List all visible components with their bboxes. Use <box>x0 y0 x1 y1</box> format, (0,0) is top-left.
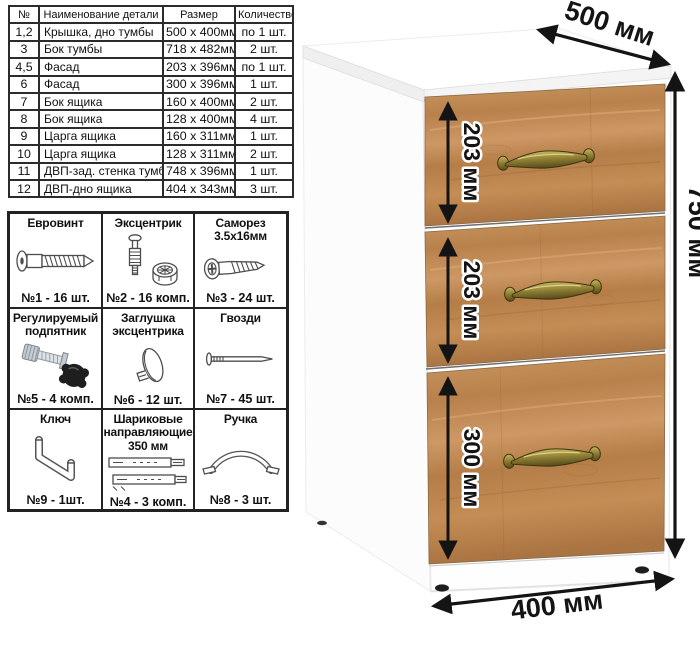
hardware-item-samorez: Саморез 3.5х16мм №3 - 24 шт. <box>194 213 287 308</box>
part-number: 3 <box>9 41 39 58</box>
dimension-label-width: 400 мм <box>509 585 604 626</box>
cabinet-illustration: 500 мм 750 мм 400 мм 203 мм 203 мм 300 м… <box>290 0 700 648</box>
part-size: 404 x 343мм <box>163 180 235 197</box>
nail-icon <box>196 325 285 392</box>
part-size: 718 x 482мм <box>163 41 235 58</box>
part-size: 128 x 400мм <box>163 110 235 127</box>
col-header-name: Наименование детали <box>39 6 163 23</box>
euro-screw-icon <box>11 230 100 291</box>
hardware-count: №6 - 12 шт. <box>114 393 183 407</box>
self-tapping-screw-icon <box>196 244 285 291</box>
assembly-sheet: № Наименование детали Размер Количество … <box>0 0 700 648</box>
part-name: ДВП-зад. стенка тумбы <box>39 163 163 180</box>
part-qty: 1 шт. <box>235 76 293 93</box>
cabinet-foot <box>635 566 649 573</box>
part-qty: 3 шт. <box>235 180 293 197</box>
table-row: 8 Бок ящика 128 x 400мм 4 шт. <box>9 110 293 127</box>
hardware-item-zaglushka: Заглушка эксцентрика №6 - 12 шт. <box>102 308 194 409</box>
hardware-item-podpyatnik: Регулируемый подпятник <box>9 308 102 409</box>
part-qty: 2 шт. <box>235 41 293 58</box>
part-number: 12 <box>9 180 39 197</box>
part-qty: 1 шт. <box>235 163 293 180</box>
hardware-title: Заглушка эксцентрика <box>104 312 192 339</box>
hardware-count: №3 - 24 шт. <box>206 291 275 305</box>
dimension-label-drawer3: 300 мм <box>459 429 485 508</box>
part-number: 9 <box>9 128 39 145</box>
hardware-count: №9 - 1шт. <box>26 493 84 507</box>
part-name: Царга ящика <box>39 128 163 145</box>
part-name: Царга ящика <box>39 145 163 162</box>
part-number: 4,5 <box>9 58 39 75</box>
ball-bearing-slides-icon <box>104 453 192 495</box>
hardware-title: Ручка <box>224 413 257 426</box>
parts-table: № Наименование детали Размер Количество … <box>8 5 294 198</box>
table-row: 7 Бок ящика 160 x 400мм 2 шт. <box>9 93 293 110</box>
hardware-title: Шариковые направляющие 350 мм <box>103 413 192 453</box>
hardware-count: №8 - 3 шт. <box>210 493 272 507</box>
part-number: 6 <box>9 76 39 93</box>
hardware-count: №4 - 3 комп. <box>110 495 187 509</box>
part-name: ДВП-дно ящика <box>39 180 163 197</box>
part-size: 500 x 400мм <box>163 23 235 40</box>
cam-lock-icon <box>104 230 192 291</box>
handle-icon <box>196 426 285 493</box>
adjustable-foot-icon <box>11 339 100 392</box>
part-qty: 2 шт. <box>235 145 293 162</box>
part-qty: 4 шт. <box>235 110 293 127</box>
col-header-size: Размер <box>163 6 235 23</box>
part-size: 748 x 396мм <box>163 163 235 180</box>
part-name: Крышка, дно тумбы <box>39 23 163 40</box>
part-size: 160 x 400мм <box>163 93 235 110</box>
part-qty: 2 шт. <box>235 93 293 110</box>
col-header-num: № <box>9 6 39 23</box>
hardware-title: Ключ <box>40 413 71 426</box>
part-name: Бок ящика <box>39 93 163 110</box>
part-size: 128 x 311мм <box>163 145 235 162</box>
table-row: 3 Бок тумбы 718 x 482мм 2 шт. <box>9 41 293 58</box>
hardware-title: Гвозди <box>220 312 261 325</box>
part-size: 203 x 396мм <box>163 58 235 75</box>
dimension-label-drawer2: 203 мм <box>459 261 485 340</box>
hardware-item-excentric: Эксцентрик №2 - 16 комп. <box>102 213 194 308</box>
part-name: Фасад <box>39 76 163 93</box>
hardware-title: Эксцентрик <box>115 217 182 230</box>
hardware-item-ruchka: Ручка №8 - 3 шт. <box>194 409 287 510</box>
hardware-item-gvozdi: Гвозди №7 - 45 шт. <box>194 308 287 409</box>
hardware-count: №7 - 45 шт. <box>206 392 275 406</box>
table-row: 4,5 Фасад 203 x 396мм по 1 шт. <box>9 58 293 75</box>
part-size: 300 x 396мм <box>163 76 235 93</box>
table-row: 11 ДВП-зад. стенка тумбы 748 x 396мм 1 ш… <box>9 163 293 180</box>
cabinet-foot-rear <box>317 521 327 525</box>
part-number: 11 <box>9 163 39 180</box>
part-qty: 1 шт. <box>235 128 293 145</box>
table-row: 1,2 Крышка, дно тумбы 500 x 400мм по 1 ш… <box>9 23 293 40</box>
cam-cover-icon <box>104 339 192 393</box>
hardware-title: Регулируемый подпятник <box>11 312 100 339</box>
table-row: 9 Царга ящика 160 x 311мм 1 шт. <box>9 128 293 145</box>
part-number: 8 <box>9 110 39 127</box>
hardware-item-napravlyayushchie: Шариковые направляющие 350 мм №4 - 3 ком… <box>102 409 194 510</box>
part-number: 7 <box>9 93 39 110</box>
table-row: 10 Царга ящика 128 x 311мм 2 шт. <box>9 145 293 162</box>
part-number: 10 <box>9 145 39 162</box>
dimension-label-drawer1: 203 мм <box>459 123 485 202</box>
hardware-count: №5 - 4 комп. <box>17 392 94 406</box>
hex-key-icon <box>11 426 100 493</box>
part-name: Бок тумбы <box>39 41 163 58</box>
cabinet-left-side <box>303 57 430 591</box>
hardware-count: №1 - 16 шт. <box>21 291 90 305</box>
cabinet-foot <box>435 584 449 591</box>
part-qty: по 1 шт. <box>235 23 293 40</box>
table-row: 6 Фасад 300 x 396мм 1 шт. <box>9 76 293 93</box>
part-name: Бок ящика <box>39 110 163 127</box>
table-row: 12 ДВП-дно ящика 404 x 343мм 3 шт. <box>9 180 293 197</box>
col-header-qty: Количество <box>235 6 293 23</box>
hardware-grid: Евровинт №1 - 16 шт. Эксцентрик <box>7 211 289 512</box>
hardware-title: Евровинт <box>27 217 83 230</box>
part-name: Фасад <box>39 58 163 75</box>
part-number: 1,2 <box>9 23 39 40</box>
hardware-count: №2 - 16 комп. <box>106 291 190 305</box>
part-qty: по 1 шт. <box>235 58 293 75</box>
dimension-label-height: 750 мм <box>683 186 700 279</box>
hardware-title: Саморез 3.5х16мм <box>196 217 285 244</box>
parts-table-header-row: № Наименование детали Размер Количество <box>9 6 293 23</box>
part-size: 160 x 311мм <box>163 128 235 145</box>
hardware-item-klyuch: Ключ №9 - 1шт. <box>9 409 102 510</box>
hardware-item-eurovint: Евровинт №1 - 16 шт. <box>9 213 102 308</box>
